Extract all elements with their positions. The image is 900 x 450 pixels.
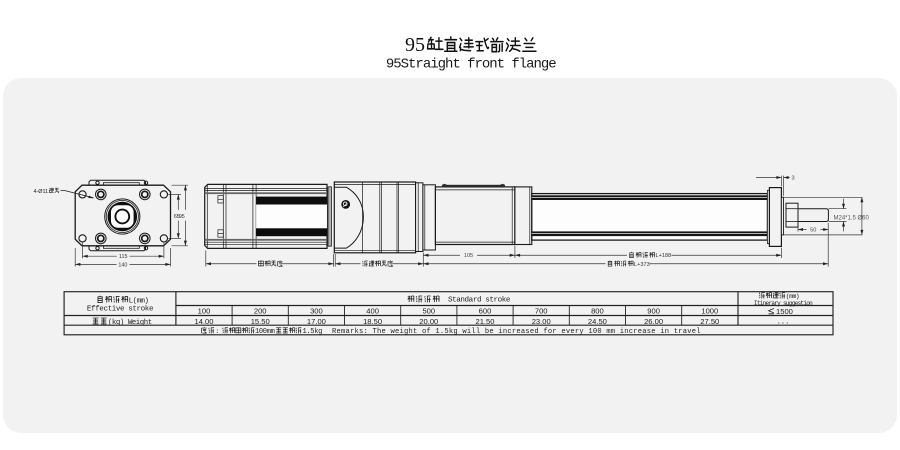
- svg-text:800: 800: [591, 307, 604, 316]
- svg-text:21.50: 21.50: [475, 317, 494, 326]
- svg-text:140: 140: [118, 262, 127, 268]
- svg-text:18.50: 18.50: [363, 317, 382, 326]
- svg-text:L+373: L+373: [634, 262, 650, 268]
- svg-text:600: 600: [479, 307, 492, 316]
- svg-text:...: ...: [777, 318, 790, 326]
- svg-text:24.50: 24.50: [588, 317, 607, 326]
- svg-text:900: 900: [647, 307, 660, 316]
- svg-text:105: 105: [464, 253, 473, 259]
- svg-text:700: 700: [535, 307, 548, 316]
- svg-text:26.00: 26.00: [644, 317, 663, 326]
- svg-text:1500: 1500: [776, 307, 793, 316]
- svg-text:500: 500: [422, 307, 435, 316]
- svg-text:95: 95: [179, 214, 185, 220]
- svg-text:300: 300: [310, 307, 323, 316]
- svg-text:3: 3: [792, 176, 795, 182]
- svg-text:400: 400: [366, 307, 379, 316]
- svg-text:95Straight front flange: 95Straight front flange: [386, 57, 556, 73]
- svg-text:95: 95: [405, 34, 425, 56]
- svg-text:50: 50: [810, 228, 816, 234]
- svg-text:27.50: 27.50: [700, 317, 719, 326]
- svg-text:200: 200: [254, 307, 267, 316]
- svg-text:100: 100: [198, 307, 211, 316]
- svg-text:1.5kg: 1.5kg: [303, 328, 323, 336]
- svg-text:15.50: 15.50: [251, 317, 270, 326]
- svg-text:(kg) Weight: (kg) Weight: [108, 319, 152, 327]
- svg-text:17.00: 17.00: [307, 317, 326, 326]
- svg-text:M24*1.5 Ø60: M24*1.5 Ø60: [834, 215, 870, 221]
- svg-text:Effective stroke: Effective stroke: [87, 305, 154, 313]
- svg-text:Standard stroke: Standard stroke: [448, 297, 511, 305]
- svg-text:1000: 1000: [701, 307, 718, 316]
- svg-text:L(mm): L(mm): [129, 297, 149, 305]
- svg-text:Remarks: The weight of 1.5kg w: Remarks: The weight of 1.5kg will be inc…: [332, 328, 701, 336]
- svg-text:14.00: 14.00: [194, 317, 213, 326]
- svg-text:115: 115: [119, 254, 128, 260]
- svg-text:20.00: 20.00: [419, 317, 438, 326]
- svg-text:L+188: L+188: [656, 253, 672, 259]
- svg-text:4-Ø11: 4-Ø11: [34, 189, 49, 195]
- svg-text::: :: [215, 328, 219, 336]
- svg-text:Itinerary suggestion: Itinerary suggestion: [754, 300, 813, 307]
- svg-text:23.00: 23.00: [532, 317, 551, 326]
- svg-text:100mm: 100mm: [255, 328, 275, 336]
